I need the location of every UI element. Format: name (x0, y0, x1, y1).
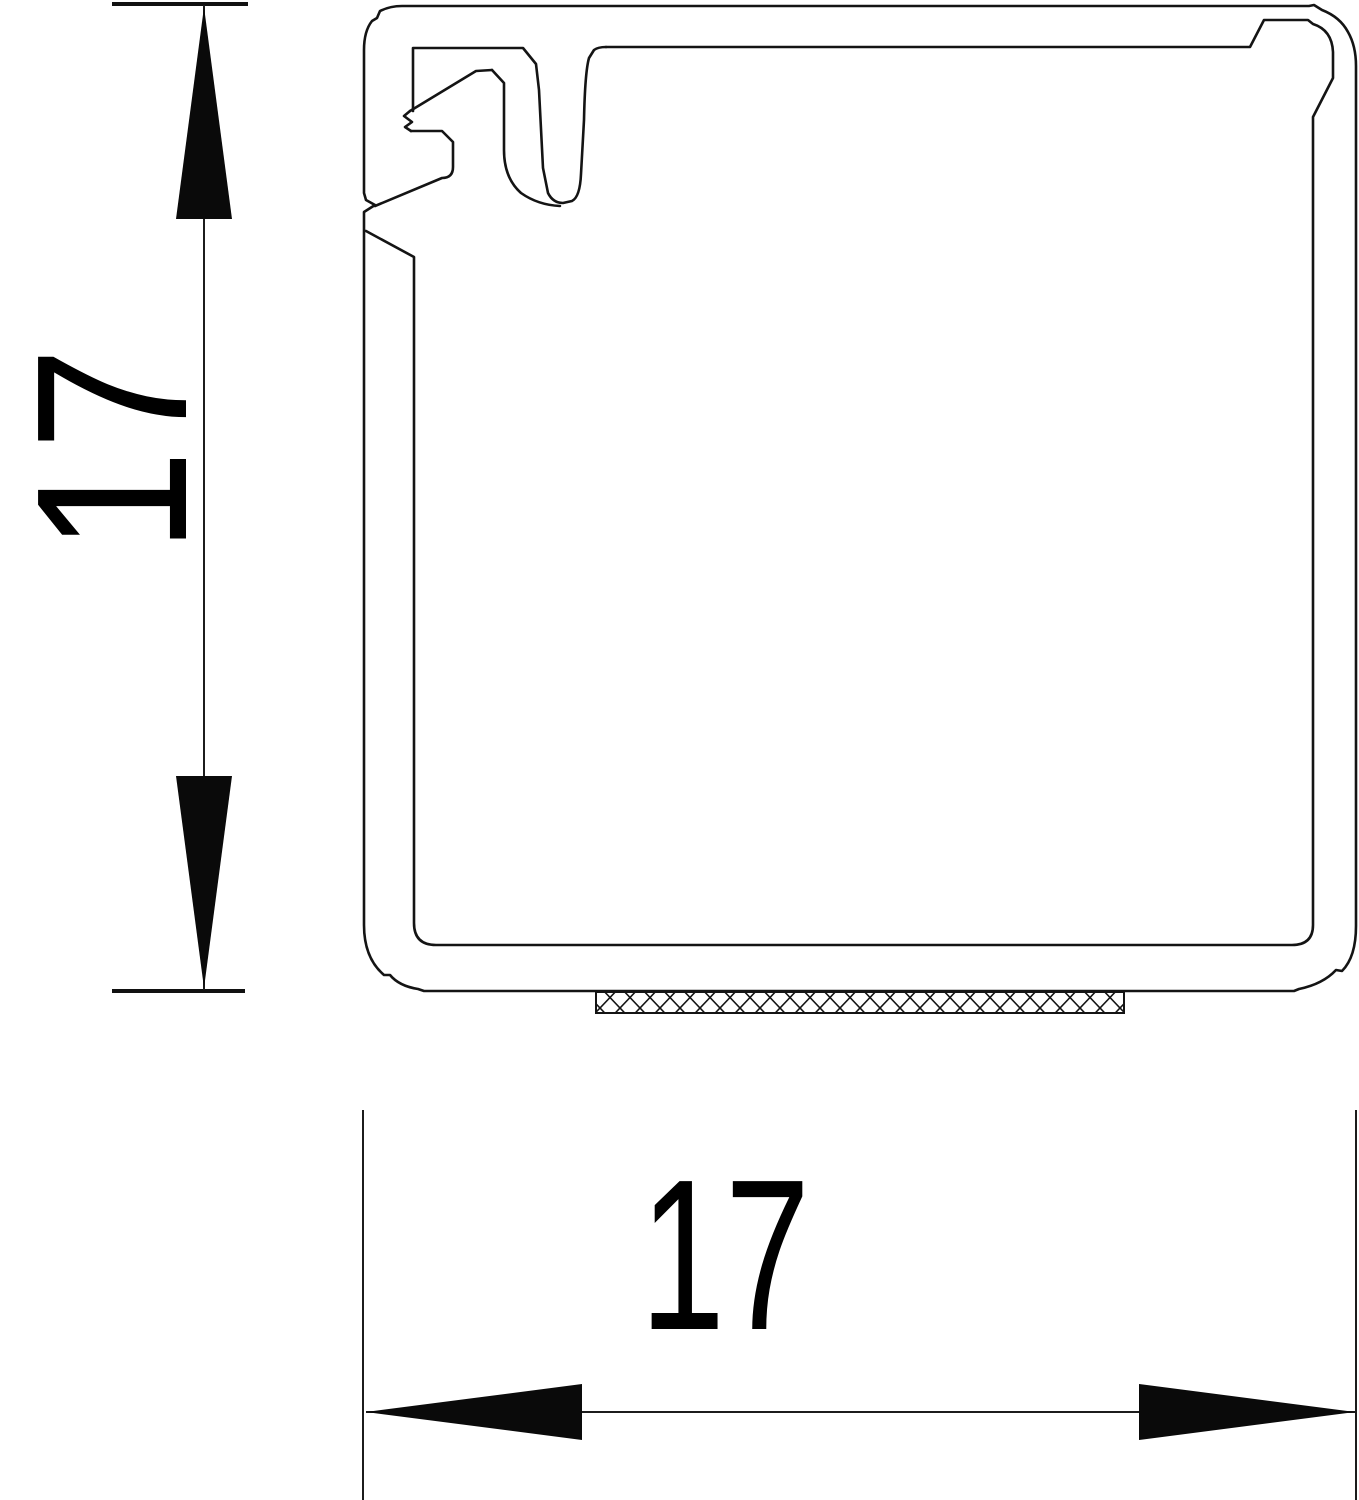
channel-outer-wall (492, 70, 560, 206)
horizontal-dim-arrow-right-icon (1139, 1384, 1355, 1440)
adhesive-strip (596, 992, 1124, 1013)
horizontal-dim-label: 17 (640, 1134, 810, 1375)
horizontal-dim-arrow-left-icon (366, 1384, 582, 1440)
vertical-dim-label: 17 (0, 348, 232, 553)
profile-inner-contour (366, 20, 1333, 945)
vertical-dim-arrow-up-icon (176, 7, 232, 219)
latch-serration (404, 111, 412, 131)
adhesive-strip-hatch (596, 992, 1124, 1013)
profile-outer-contour (364, 5, 1356, 991)
vertical-dimension: 17 (0, 4, 248, 991)
drawing-canvas: 17 17 (0, 0, 1359, 1500)
vertical-dim-arrow-down-icon (176, 776, 232, 988)
trunking-profile (364, 5, 1356, 991)
trunking-cross-section-drawing: 17 17 (0, 0, 1359, 1500)
horizontal-dimension: 17 (363, 1110, 1356, 1500)
latch-hook-lip (375, 131, 453, 206)
lid-clamp-finger (410, 70, 492, 111)
